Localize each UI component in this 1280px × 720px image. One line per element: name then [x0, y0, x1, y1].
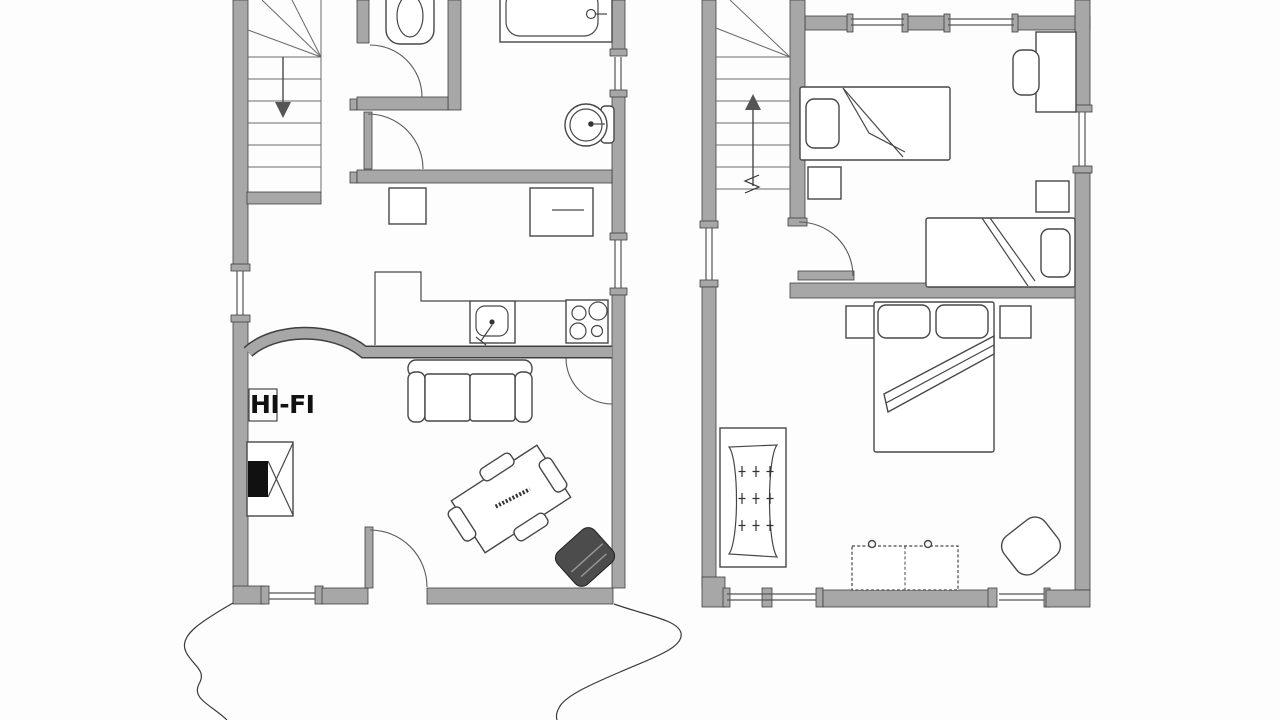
sofa-arm-right	[515, 372, 532, 422]
entrance-door-arc	[370, 530, 427, 587]
ground-floor-plan: HI-FI	[184, 0, 681, 720]
terrain-line-right	[556, 604, 681, 720]
sofa-arm-left	[408, 372, 425, 422]
fireplace-hearth	[248, 461, 268, 497]
pillow	[878, 305, 930, 338]
bedroom-single-beds	[800, 32, 1076, 287]
bathroom-door-arc	[368, 114, 423, 169]
terrain-line-left	[184, 603, 233, 720]
stairs-down-arrow-icon	[275, 102, 291, 118]
floor-plan-page: HI-FI	[0, 0, 1280, 720]
nightstand	[1000, 306, 1031, 338]
round-washbasin	[565, 104, 607, 146]
floor-plan-drawing: HI-FI	[0, 0, 1280, 720]
stair-break-mark	[745, 175, 759, 193]
stairs-up-arrow-icon	[745, 94, 761, 110]
sofa-cushion	[470, 374, 515, 421]
sink-drain	[489, 319, 494, 324]
stairs-up	[716, 0, 790, 193]
desk-chair	[1013, 50, 1039, 95]
bathroom-door-leaf	[364, 112, 372, 169]
bedroom-door-arc	[799, 222, 853, 276]
nightstand	[808, 167, 841, 199]
kitchen-door-arc	[566, 358, 612, 404]
bedroom-double-bed	[720, 302, 1066, 590]
nightstand	[1036, 181, 1069, 212]
chest-knob	[869, 541, 876, 548]
wc-door-arc	[370, 45, 422, 97]
hifi-label: HI-FI	[250, 390, 314, 419]
basin-drain	[588, 121, 594, 127]
living-room-furniture: HI-FI	[247, 360, 618, 590]
kitchen	[375, 272, 608, 345]
dresser	[530, 188, 593, 236]
hall-cabinet	[389, 188, 426, 224]
curved-wall	[248, 333, 612, 352]
nightstand	[846, 306, 877, 338]
chest-knob	[925, 541, 932, 548]
stool	[996, 512, 1065, 580]
sofa-cushion	[425, 374, 470, 421]
bedroom-door-leaf	[798, 271, 854, 280]
stairs-down	[248, 0, 321, 192]
armchair	[552, 524, 619, 590]
desk	[1036, 32, 1076, 112]
upper-floor-plan	[700, 0, 1092, 607]
pillow	[936, 305, 988, 338]
pillow	[806, 99, 839, 148]
pillow	[1041, 229, 1070, 277]
entrance-door-leaf	[365, 527, 373, 588]
